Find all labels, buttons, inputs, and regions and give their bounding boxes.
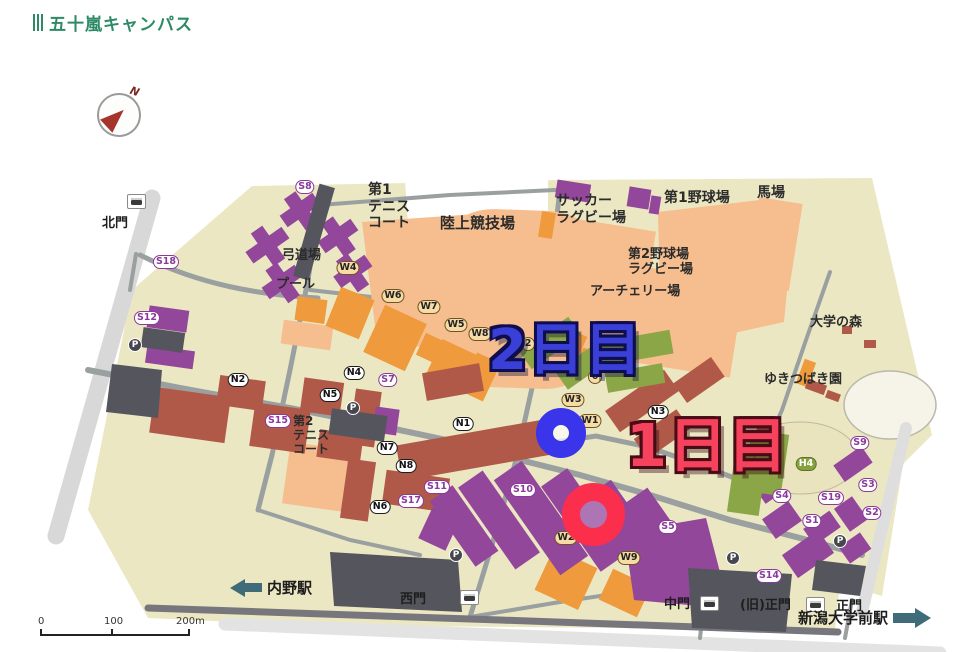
building-marker-S1: S1	[802, 514, 821, 528]
building-marker-W6: W6	[381, 289, 404, 303]
area-tennis-court-2: 第2テニスコート	[293, 414, 329, 456]
parking-marker: P	[726, 551, 740, 565]
building-marker-N6: N6	[370, 500, 391, 514]
campus-map-page: 五十嵐キャンパス	[0, 0, 960, 652]
building-marker-N4: N4	[344, 366, 365, 380]
area-baseball-rugby-field-2: 第2野球場ラグビー場	[628, 247, 693, 278]
building-marker-N8: N8	[396, 459, 417, 473]
area-athletics-field: 陸上競技場	[440, 215, 515, 233]
building-marker-S18: S18	[153, 255, 179, 269]
day2-location-marker	[536, 408, 586, 458]
area-tennis-court-1: 第1テニスコート	[368, 182, 410, 232]
station-uchino: 内野駅	[230, 577, 312, 598]
building-marker-S11: S11	[424, 480, 450, 494]
scale-bar: 0 100 200m	[38, 616, 198, 638]
station-uchino-label: 内野駅	[267, 577, 312, 598]
area-horse-riding-ground: 馬場	[757, 185, 785, 202]
area-baseball-field-1: 第1野球場	[664, 190, 730, 207]
bus-stop-icon	[460, 590, 479, 605]
building-marker-S12: S12	[134, 311, 160, 325]
building-marker-W9: W9	[617, 551, 640, 565]
building-marker-S2: S2	[862, 506, 881, 520]
left-arrow-icon	[230, 579, 262, 597]
building-marker-W7: W7	[417, 300, 440, 314]
parking-marker: P	[346, 401, 360, 415]
building-marker-W3: W3	[561, 393, 584, 407]
area-soccer-rugby-field: サッカーラグビー場	[556, 193, 626, 226]
building-marker-S7: S7	[378, 373, 397, 387]
building-marker-W4: W4	[336, 261, 359, 275]
campus-map: N 第1テニスコート陸上競技場サッカーラグビー場第1野球場馬場第2野球場ラグビー…	[0, 40, 960, 652]
parking-marker: P	[833, 534, 847, 548]
scale-bar-mid-tick	[111, 629, 113, 634]
building-marker-S9: S9	[850, 436, 869, 450]
building-marker-S8: S8	[295, 180, 314, 194]
building-marker-S5: S5	[658, 520, 677, 534]
day1-location-marker	[562, 483, 625, 546]
title-decoration-bars	[33, 14, 43, 31]
area-yukitsubaki-garden: ゆきつばき園	[764, 372, 842, 387]
building-marker-S10: S10	[510, 483, 536, 497]
gate-label: (旧)正門	[740, 594, 791, 613]
gate-label: 北門	[102, 212, 128, 231]
scale-label-0: 0	[38, 616, 44, 627]
building-marker-S19: S19	[818, 491, 844, 505]
area-university-forest: 大学の森	[810, 315, 862, 330]
building-marker-S14: S14	[756, 569, 782, 583]
bus-stop-icon	[127, 194, 146, 209]
scale-label-200m: 200m	[176, 616, 205, 627]
day2-annotation: 2日目	[488, 323, 642, 379]
building-marker-S17: S17	[398, 494, 424, 508]
building-marker-H4: H4	[796, 457, 817, 471]
map-labels-layer: 第1テニスコート陸上競技場サッカーラグビー場第1野球場馬場第2野球場ラグビー場ア…	[0, 40, 960, 652]
day1-annotation: 1日目	[626, 416, 788, 475]
building-marker-S4: S4	[772, 489, 791, 503]
area-kyudo-hall: 弓道場	[282, 248, 321, 263]
gate-label: 中門	[664, 593, 690, 612]
station-niigata-univ: 新潟大学前駅	[798, 607, 931, 628]
building-marker-N1: N1	[453, 417, 474, 431]
bus-stop-icon	[700, 596, 719, 611]
building-marker-N2: N2	[228, 373, 249, 387]
station-niigata-univ-label: 新潟大学前駅	[798, 607, 888, 628]
building-marker-S3: S3	[858, 478, 877, 492]
parking-marker: P	[128, 338, 142, 352]
scale-bar-line	[40, 629, 190, 636]
right-arrow-icon	[893, 608, 931, 628]
parking-marker: P	[449, 548, 463, 562]
building-marker-S15: S15	[265, 414, 291, 428]
gate-label: 西門	[400, 588, 426, 607]
page-title: 五十嵐キャンパス	[33, 10, 193, 35]
area-archery-field: アーチェリー場	[590, 284, 680, 299]
building-marker-N5: N5	[320, 388, 341, 402]
building-marker-W5: W5	[444, 318, 467, 332]
area-pool: プール	[276, 277, 315, 292]
scale-label-100: 100	[104, 616, 123, 627]
page-title-text: 五十嵐キャンパス	[49, 10, 193, 35]
building-marker-N7: N7	[377, 441, 398, 455]
